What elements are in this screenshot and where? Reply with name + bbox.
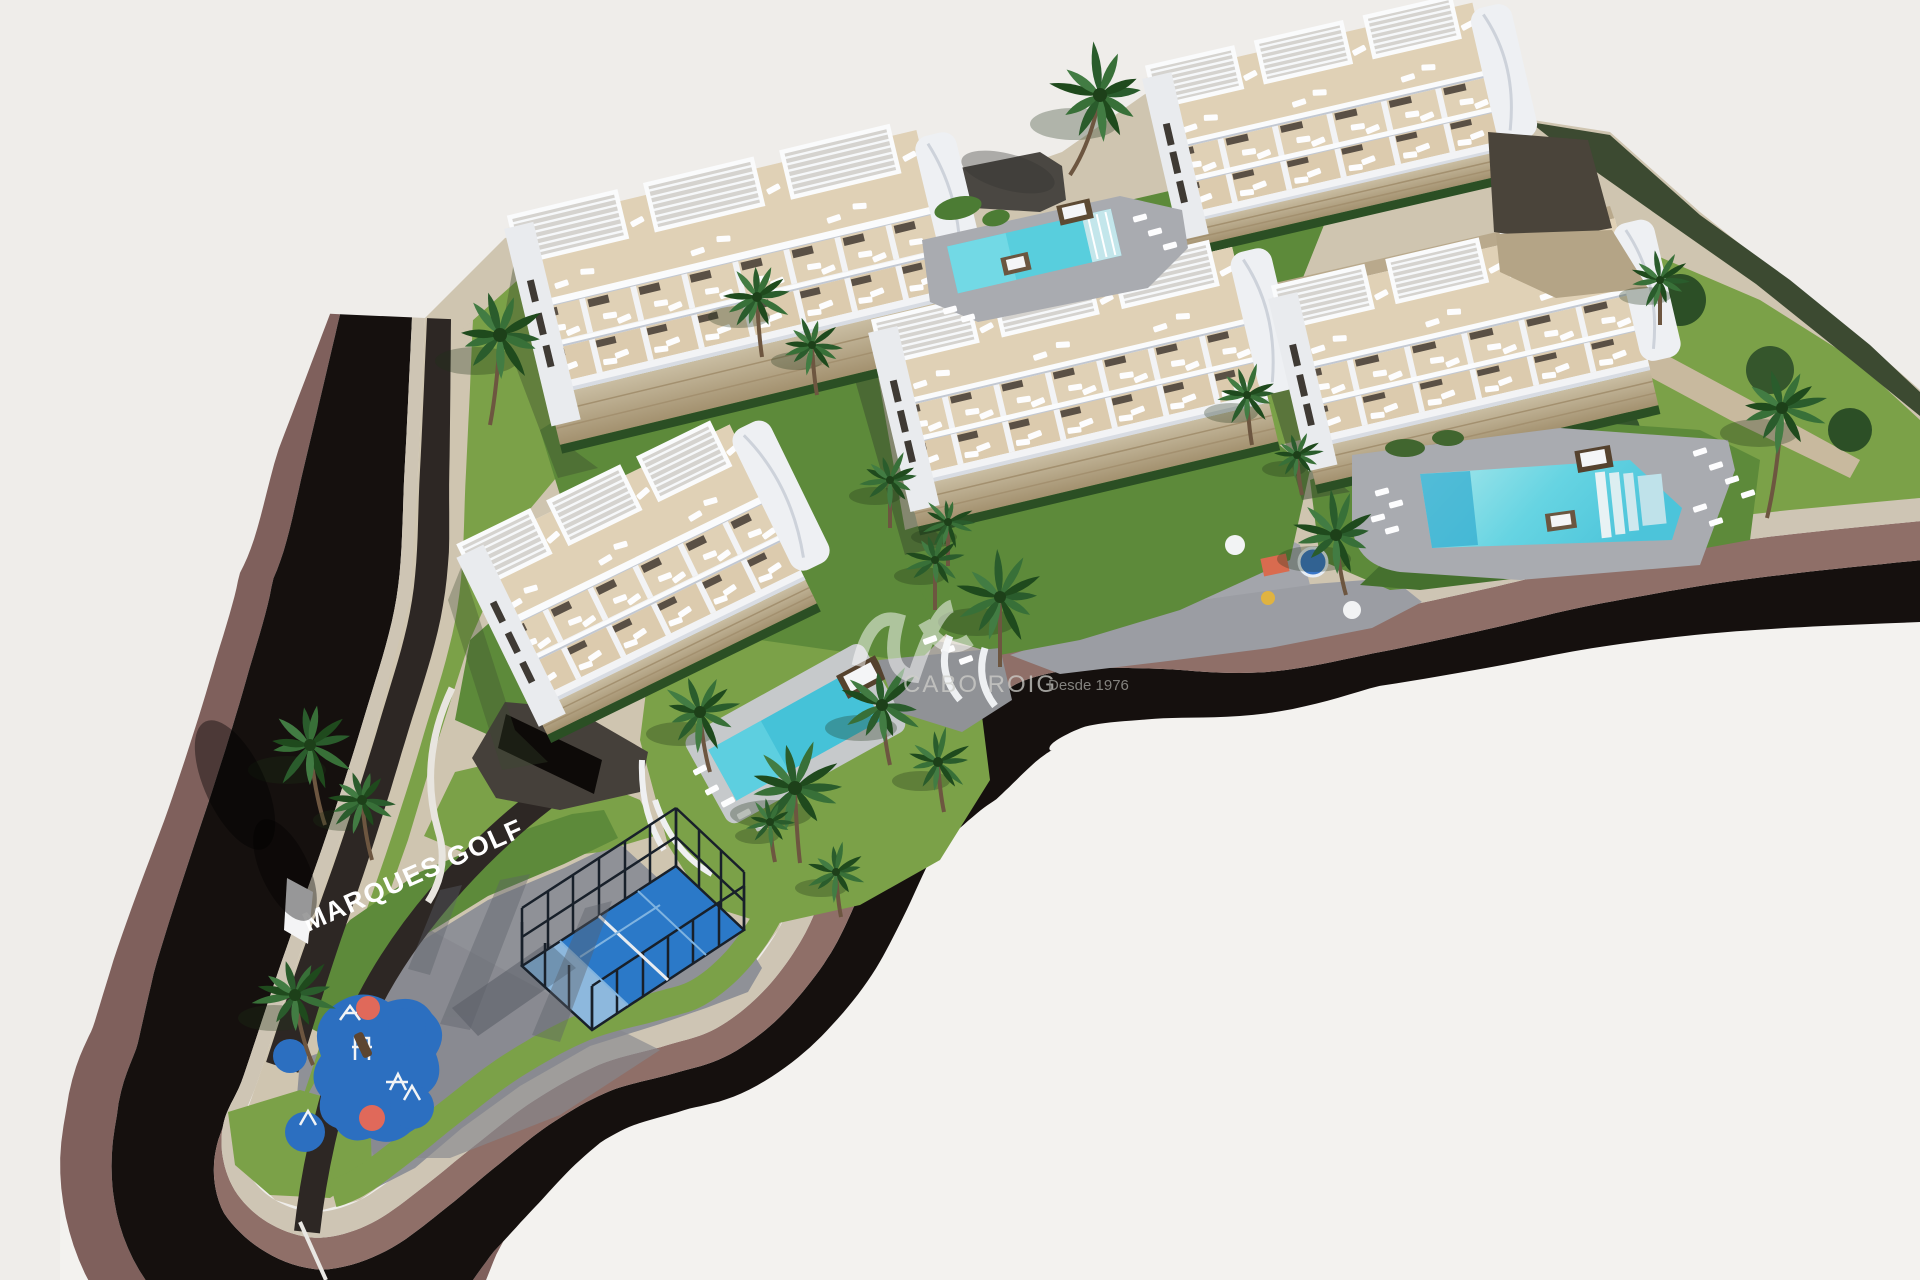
svg-text:Desde 1976: Desde 1976: [1048, 677, 1129, 694]
svg-text:CABO ROIG: CABO ROIG: [903, 671, 1057, 698]
